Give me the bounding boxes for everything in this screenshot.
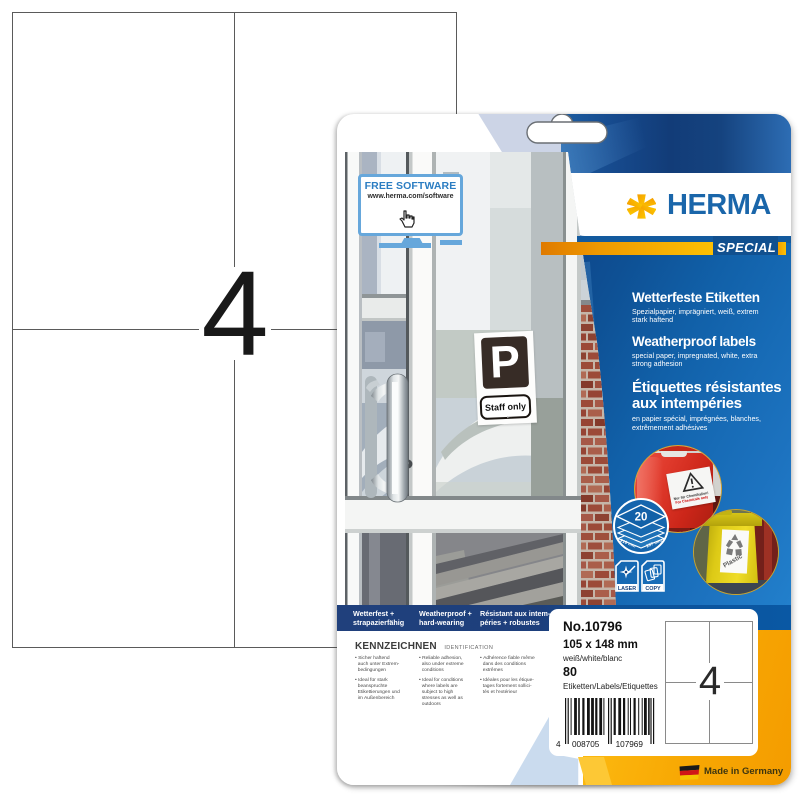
svg-text:107969: 107969 (616, 740, 644, 749)
svg-text:COPY: COPY (645, 586, 661, 592)
svg-text:LASER: LASER (618, 586, 636, 592)
svg-text:20: 20 (635, 512, 648, 524)
svg-text:008705: 008705 (572, 740, 600, 749)
svg-text:4: 4 (556, 740, 561, 749)
